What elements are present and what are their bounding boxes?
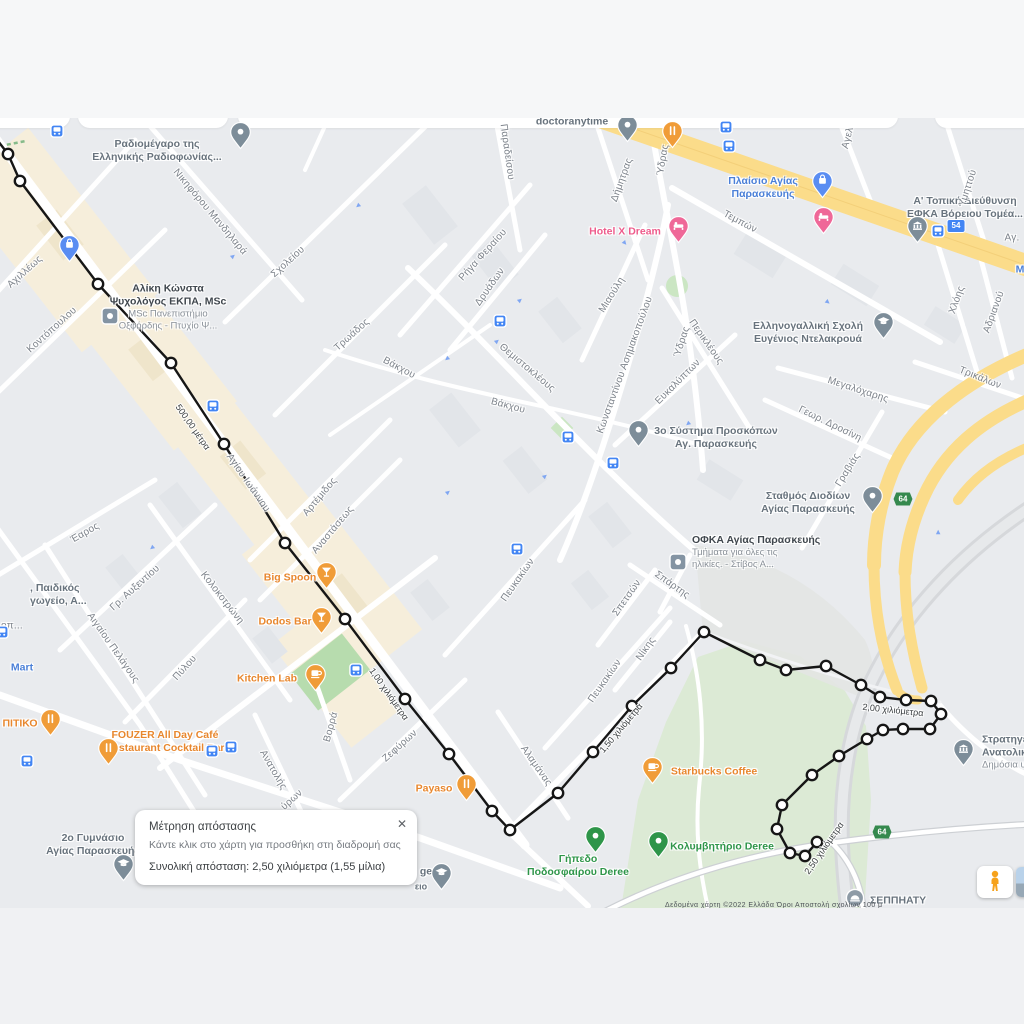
- route-point[interactable]: [3, 149, 13, 159]
- poi-label-line: Starbucks Coffee: [671, 766, 757, 779]
- route-badge-64: 64: [894, 493, 913, 506]
- route-point[interactable]: [755, 655, 765, 665]
- imagery-thumbnail[interactable]: [1016, 867, 1024, 897]
- map-pin-plaisio[interactable]: [811, 170, 834, 199]
- route-point[interactable]: [834, 751, 844, 761]
- poi-label-line: Kitchen Lab: [237, 673, 297, 686]
- map-canvas[interactable]: ▸▸▸▸▸▸▸▸▸▸▸▸ doctoranytimeΡαδιομέγαρο τη…: [0, 118, 1024, 908]
- poi-label-big-spoon[interactable]: Big Spoon: [264, 572, 317, 585]
- poi-label-plaisio-agias-paraskevis[interactable]: Πλαίσιο ΑγίαςΠαρασκευής: [728, 175, 798, 201]
- poi-label-line: Ραδιομέγαρο της: [92, 138, 221, 151]
- bus-stop-icon[interactable]: [510, 542, 524, 556]
- poi-label-line: 2ο Γυμνάσιο: [46, 832, 140, 845]
- poi-label-line: ΟΦΚΑ Αγίας Παρασκευής: [692, 534, 820, 547]
- poi-label-line: Πλαίσιο Αγίας: [728, 175, 798, 188]
- poi-label-line: Αγίας Παρασκευής: [761, 503, 855, 516]
- map-pin-fouzer[interactable]: [97, 737, 120, 766]
- map-pin-stratigeio[interactable]: [952, 738, 975, 767]
- poi-label-line: Mart: [11, 662, 33, 675]
- bus-stop-icon[interactable]: [224, 740, 238, 754]
- map-pin-dodos-bar[interactable]: [310, 606, 333, 635]
- route-point[interactable]: [878, 725, 888, 735]
- route-point[interactable]: [93, 279, 103, 289]
- poi-label-ellinogalliki-scholi[interactable]: Ελληνογαλλική ΣχολήΕυγένιος Ντελακρουά: [753, 320, 863, 346]
- poi-label-line: Dodos Bar: [258, 616, 311, 629]
- map-pin-college[interactable]: [430, 862, 453, 891]
- route-point[interactable]: [487, 806, 497, 816]
- poi-label-line: ΠΙΤΙΚΟ: [2, 718, 37, 731]
- pegman-button[interactable]: [977, 866, 1013, 898]
- top-card-cutoff: [935, 118, 1024, 128]
- poi-label-hotel-x-dream[interactable]: Hotel X Dream: [589, 226, 661, 239]
- poi-label-dodos-bar[interactable]: Dodos Bar: [258, 616, 311, 629]
- poi-label-line: doctoranytime: [536, 118, 608, 129]
- map-pin-gipedo-deree[interactable]: [584, 825, 607, 854]
- route-point[interactable]: [219, 439, 229, 449]
- map-pin-proskopoi[interactable]: [627, 419, 650, 448]
- map-pin-payaso[interactable]: [455, 773, 478, 802]
- route-point[interactable]: [901, 695, 911, 705]
- bus-stop-icon[interactable]: [205, 744, 219, 758]
- poi-label-line: γωγείο, Α...: [30, 595, 87, 608]
- poi-label-radiomegaro[interactable]: Ραδιομέγαρο τηςΕλληνικής Ραδιοφωνίας...: [92, 138, 221, 164]
- bus-stop-icon[interactable]: [719, 120, 733, 134]
- map-pin-starbucks[interactable]: [641, 756, 664, 785]
- poi-label-gipedo-deree[interactable]: ΓήπεδοΠοδοσφαίρου Deree: [527, 853, 629, 879]
- street-label: Αγ.: [1004, 233, 1019, 244]
- poi-label-line: 3ο Σύστημα Προσκόπων: [654, 425, 777, 438]
- poi-label-line: Σταθμός Διοδίων: [761, 490, 855, 503]
- poi-label-subline: ηλικίες. - Στίβος Α...: [692, 559, 820, 571]
- poi-label-aliki-konsta[interactable]: Αλίκη ΚώνσταΨυχολόγος ΕΚΠΑ, MScMSc Πανεπ…: [110, 283, 227, 332]
- dialog-total-distance: Συνολική απόσταση: 2,50 χιλιόμετρα (1,55…: [149, 861, 403, 873]
- poi-label-line: FOUZER All Day Café: [105, 729, 224, 742]
- route-point[interactable]: [807, 770, 817, 780]
- poi-label-doctoranytime[interactable]: doctoranytime: [536, 118, 608, 129]
- route-point[interactable]: [875, 692, 885, 702]
- distance-measure-dialog: ✕ Μέτρηση απόστασης Κάντε κλικ στο χάρτη…: [135, 810, 417, 885]
- map-pin-radiomegaro[interactable]: [229, 121, 252, 150]
- poi-label-starbucks[interactable]: Starbucks Coffee: [671, 766, 757, 779]
- route-point[interactable]: [785, 848, 795, 858]
- close-icon[interactable]: ✕: [397, 817, 407, 831]
- poi-label-line: Αλίκη Κώνστα: [110, 283, 227, 296]
- route-point[interactable]: [444, 749, 454, 759]
- route-point[interactable]: [936, 709, 946, 719]
- map-pin-doctoranytime[interactable]: [616, 118, 639, 143]
- route-point[interactable]: [777, 800, 787, 810]
- route-point[interactable]: [781, 665, 791, 675]
- route-point[interactable]: [553, 788, 563, 798]
- poi-label-line: Ελληνογαλλική Σχολή: [753, 320, 863, 333]
- map-pin-ellinogalliki-scholi[interactable]: [872, 311, 895, 340]
- poi-label-pitiko[interactable]: ΠΙΤΙΚΟ: [2, 718, 37, 731]
- route-point[interactable]: [15, 176, 25, 186]
- poi-label-line: , Παιδικός: [30, 582, 87, 595]
- route-point[interactable]: [898, 724, 908, 734]
- route-point[interactable]: [925, 724, 935, 734]
- pegman-icon: [987, 870, 1003, 894]
- poi-label-stratigeio[interactable]: ΣτρατηγεΑνατολικΔημόσια υπ: [982, 733, 1024, 771]
- poi-label-line: Hotel X Dream: [589, 226, 661, 239]
- bus-stop-icon[interactable]: [931, 224, 945, 238]
- poi-label-line: Στρατηγε: [982, 733, 1024, 746]
- poi-label-proskopoi[interactable]: 3ο Σύστημα ΠροσκόπωνΑγ. Παρασκευής: [654, 425, 777, 451]
- route-point[interactable]: [772, 824, 782, 834]
- route-badge-54: 54: [948, 220, 965, 232]
- map-pin-hotel-x-dream[interactable]: [667, 215, 690, 244]
- map-pin-hotel-2[interactable]: [812, 206, 835, 235]
- google-maps-page: ▸▸▸▸▸▸▸▸▸▸▸▸ doctoranytimeΡαδιομέγαρο τη…: [0, 0, 1024, 1024]
- poi-label-line: Big Spoon: [264, 572, 317, 585]
- map-pin-stathmos-diodion[interactable]: [861, 485, 884, 514]
- poi-label-payaso[interactable]: Payaso: [416, 783, 453, 796]
- map-attribution: Δεδομένα χάρτη ©2022 Ελλάδα Όροι Αποστολ…: [665, 902, 1024, 908]
- map-square-icon-aliki-konsta[interactable]: [101, 307, 119, 325]
- poi-label-line: Ευγένιος Ντελακρουά: [753, 333, 863, 346]
- poi-label-line: Payaso: [416, 783, 453, 796]
- route-point[interactable]: [166, 358, 176, 368]
- map-pin-kolymbitirio-deree[interactable]: [647, 830, 670, 859]
- poi-label-line: Μ: [1016, 264, 1024, 277]
- page-bottom-margin: [0, 908, 1024, 1024]
- route-badge-64: 64: [873, 826, 892, 839]
- poi-label-m-partial[interactable]: Μ: [1016, 264, 1024, 277]
- route-point[interactable]: [926, 696, 936, 706]
- poi-label-kolymbitirio-deree[interactable]: Κολυμβητήριο Deree: [670, 841, 774, 854]
- map-pin-restaurant-top[interactable]: [661, 120, 684, 149]
- poi-label-subline: Τμήματα για όλες τις: [692, 547, 820, 559]
- poi-label-ofka[interactable]: ΟΦΚΑ Αγίας ΠαρασκευήςΤμήματα για όλες τι…: [692, 534, 820, 570]
- route-point[interactable]: [666, 663, 676, 673]
- map-square-icon-ofka[interactable]: [669, 553, 687, 571]
- top-card-cutoff: [78, 118, 228, 128]
- route-point[interactable]: [856, 680, 866, 690]
- poi-label-line: Αγ. Παρασκευής: [654, 438, 777, 451]
- route-point[interactable]: [280, 538, 290, 548]
- poi-label-line: Κολυμβητήριο Deree: [670, 841, 774, 854]
- bus-stop-icon[interactable]: [606, 456, 620, 470]
- route-point[interactable]: [505, 825, 515, 835]
- poi-label-line: Παρασκευής: [728, 188, 798, 201]
- route-point[interactable]: [699, 627, 709, 637]
- poi-label-college-eio[interactable]: ειο: [415, 881, 427, 894]
- poi-label-line: Ελληνικής Ραδιοφωνίας...: [92, 151, 221, 164]
- poi-label-line: Ανατολικ: [982, 746, 1024, 759]
- bus-stop-icon[interactable]: [561, 430, 575, 444]
- route-point[interactable]: [821, 661, 831, 671]
- bus-stop-icon[interactable]: [50, 124, 64, 138]
- poi-label-paidikos-stathmos[interactable]: , Παιδικόςγωγείο, Α...: [30, 582, 87, 608]
- poi-label-kitchen-lab[interactable]: Kitchen Lab: [237, 673, 297, 686]
- bus-stop-icon[interactable]: [722, 139, 736, 153]
- bus-stop-icon[interactable]: [493, 314, 507, 328]
- bus-stop-icon[interactable]: [0, 625, 9, 639]
- map-pin-shopping-left[interactable]: [58, 234, 81, 263]
- bus-stop-icon[interactable]: [206, 399, 220, 413]
- route-point[interactable]: [340, 614, 350, 624]
- poi-label-stathmos-diodion[interactable]: Σταθμός ΔιοδίωνΑγίας Παρασκευής: [761, 490, 855, 516]
- poi-label-mart[interactable]: Mart: [11, 662, 33, 675]
- map-pin-big-spoon[interactable]: [315, 561, 338, 590]
- bus-stop-icon[interactable]: [349, 663, 363, 677]
- poi-label-subline: Οξφόρδης - Πτυχίο Ψ...: [110, 320, 227, 332]
- poi-label-line: Γήπεδο: [527, 853, 629, 866]
- bus-stop-icon[interactable]: [20, 754, 34, 768]
- poi-label-line: Ψυχολόγος ΕΚΠΑ, MSc: [110, 296, 227, 309]
- poi-label-line: Ποδοσφαίρου Deree: [527, 866, 629, 879]
- map-pin-gymnasio-2[interactable]: [112, 853, 135, 882]
- poi-label-subline: MSc Πανεπιστήμιο: [110, 309, 227, 321]
- map-pin-efka[interactable]: [906, 215, 929, 244]
- page-top-margin: [0, 0, 1024, 118]
- route-point[interactable]: [862, 734, 872, 744]
- one-way-arrow-icon: ▸: [934, 530, 943, 535]
- dialog-title: Μέτρηση απόστασης: [149, 821, 403, 833]
- dialog-hint: Κάντε κλικ στο χάρτη για προσθήκη στη δι…: [149, 839, 403, 851]
- map-pin-kitchen-lab[interactable]: [304, 663, 327, 692]
- poi-label-line: ειο: [415, 881, 427, 894]
- map-pin-pitiko[interactable]: [39, 708, 62, 737]
- poi-label-subline: Δημόσια υπ: [982, 759, 1024, 771]
